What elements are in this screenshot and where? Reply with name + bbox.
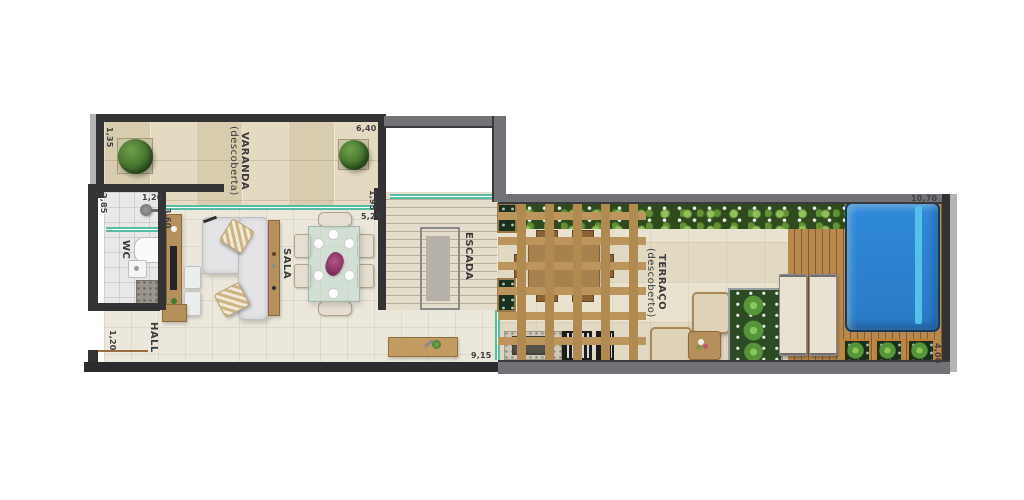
dim-varanda-width: 6,40 <box>356 124 377 133</box>
varanda-top-wall <box>96 114 386 122</box>
console-decor <box>272 252 276 256</box>
dim-value: 6,40 <box>356 124 377 133</box>
room-subname: (descoberto) <box>645 248 656 318</box>
console-decor <box>272 264 276 268</box>
room-name: HALL <box>148 322 159 353</box>
plate <box>313 270 324 281</box>
stair-landing <box>426 236 450 301</box>
outer-wall <box>950 194 957 372</box>
varanda-bush <box>339 140 369 170</box>
palm-plant <box>742 319 765 342</box>
pouf <box>184 266 201 289</box>
escada-label: ESCADA <box>463 232 474 280</box>
dim-value: 1,20 <box>142 193 163 202</box>
plate <box>313 238 324 249</box>
dim-terraco-right: 4,00 <box>933 343 942 364</box>
sala-varanda-glass-door <box>166 205 378 210</box>
palm-plant <box>846 341 865 360</box>
room-name: TERRAÇO <box>656 254 667 310</box>
dim-value: 2,85 <box>99 193 108 214</box>
sofa-back-console <box>268 220 280 316</box>
dim-value: 1,35 <box>105 127 114 148</box>
swimming-pool <box>845 202 940 332</box>
wc-sink-drain <box>134 266 139 271</box>
palm-plant <box>742 342 765 362</box>
bottom-wall-left <box>84 362 498 372</box>
terraco-label: TERRAÇO (descoberto) <box>645 248 667 316</box>
tv <box>170 246 177 290</box>
dim-sala-right-top: 1,95 <box>368 190 377 211</box>
dim-wc-right: 3,60 <box>163 208 172 229</box>
dining-bench-top <box>318 212 352 227</box>
terrace-armchair <box>692 292 730 334</box>
room-subname: (descoberta) <box>228 126 239 196</box>
dim-value: 1,20 <box>108 330 117 351</box>
dim-value: 1,95 <box>368 190 377 211</box>
plate <box>328 229 339 240</box>
terraco-right-wall <box>942 194 950 372</box>
void-frame-top <box>384 116 504 128</box>
dining-bench-bottom <box>318 301 352 316</box>
palm-plant <box>742 294 765 317</box>
palm-plant <box>878 341 897 360</box>
dim-wc-left: 2,85 <box>99 193 108 214</box>
dim-value: 10,70 <box>911 194 937 203</box>
terraco-top-wall <box>498 194 950 204</box>
wc-right-wall <box>158 184 166 310</box>
dim-varanda-left: 1,35 <box>105 127 114 148</box>
room-name: WC <box>120 240 131 259</box>
pergola <box>498 202 646 362</box>
room-name: VARANDA <box>239 132 250 190</box>
plate <box>344 238 355 249</box>
wc-label: WC <box>120 240 131 259</box>
table-flowers <box>696 345 701 350</box>
varanda-bush <box>118 139 153 174</box>
varanda-label: VARANDA (descoberta) <box>228 126 250 196</box>
dim-wc-width: 1,20 <box>142 193 163 202</box>
room-name: SALA <box>281 248 292 279</box>
plate <box>344 270 355 281</box>
entry-door-leaf <box>96 350 148 352</box>
dim-hall-left: 1,20 <box>108 330 117 351</box>
void-frame-right <box>492 116 506 202</box>
dim-value: 5,25 <box>361 212 382 221</box>
dim-value: 3,60 <box>163 208 172 229</box>
wc-left-wall <box>88 184 98 306</box>
terraco-bottom-wall <box>498 360 950 374</box>
dim-sala-bottom: 9,15 <box>471 351 492 360</box>
floor-plan-canvas: VARANDA (descoberta) SALA WC HALL ESCADA… <box>0 0 1024 500</box>
dim-terraco-width: 10,70 <box>911 194 937 203</box>
low-bench <box>388 337 458 357</box>
dim-value: 9,15 <box>471 351 492 360</box>
table-flowers <box>703 344 708 349</box>
wc-counter <box>136 280 158 305</box>
wc-bottom-wall <box>88 303 160 311</box>
dim-value: 4,00 <box>933 343 942 364</box>
console-decor <box>272 286 276 290</box>
sun-lounger <box>779 274 807 356</box>
plate <box>328 288 339 299</box>
sun-lounger <box>809 274 837 356</box>
wc-shower-glass <box>106 227 158 232</box>
room-name: ESCADA <box>463 232 474 280</box>
sala-label: SALA <box>281 248 292 279</box>
pool-lane-stripe <box>915 206 922 324</box>
palm-plant <box>910 341 929 360</box>
hall-label: HALL <box>148 322 159 353</box>
dim-sala-right: 5,25 <box>361 212 382 221</box>
escada-top-glass <box>390 194 492 199</box>
